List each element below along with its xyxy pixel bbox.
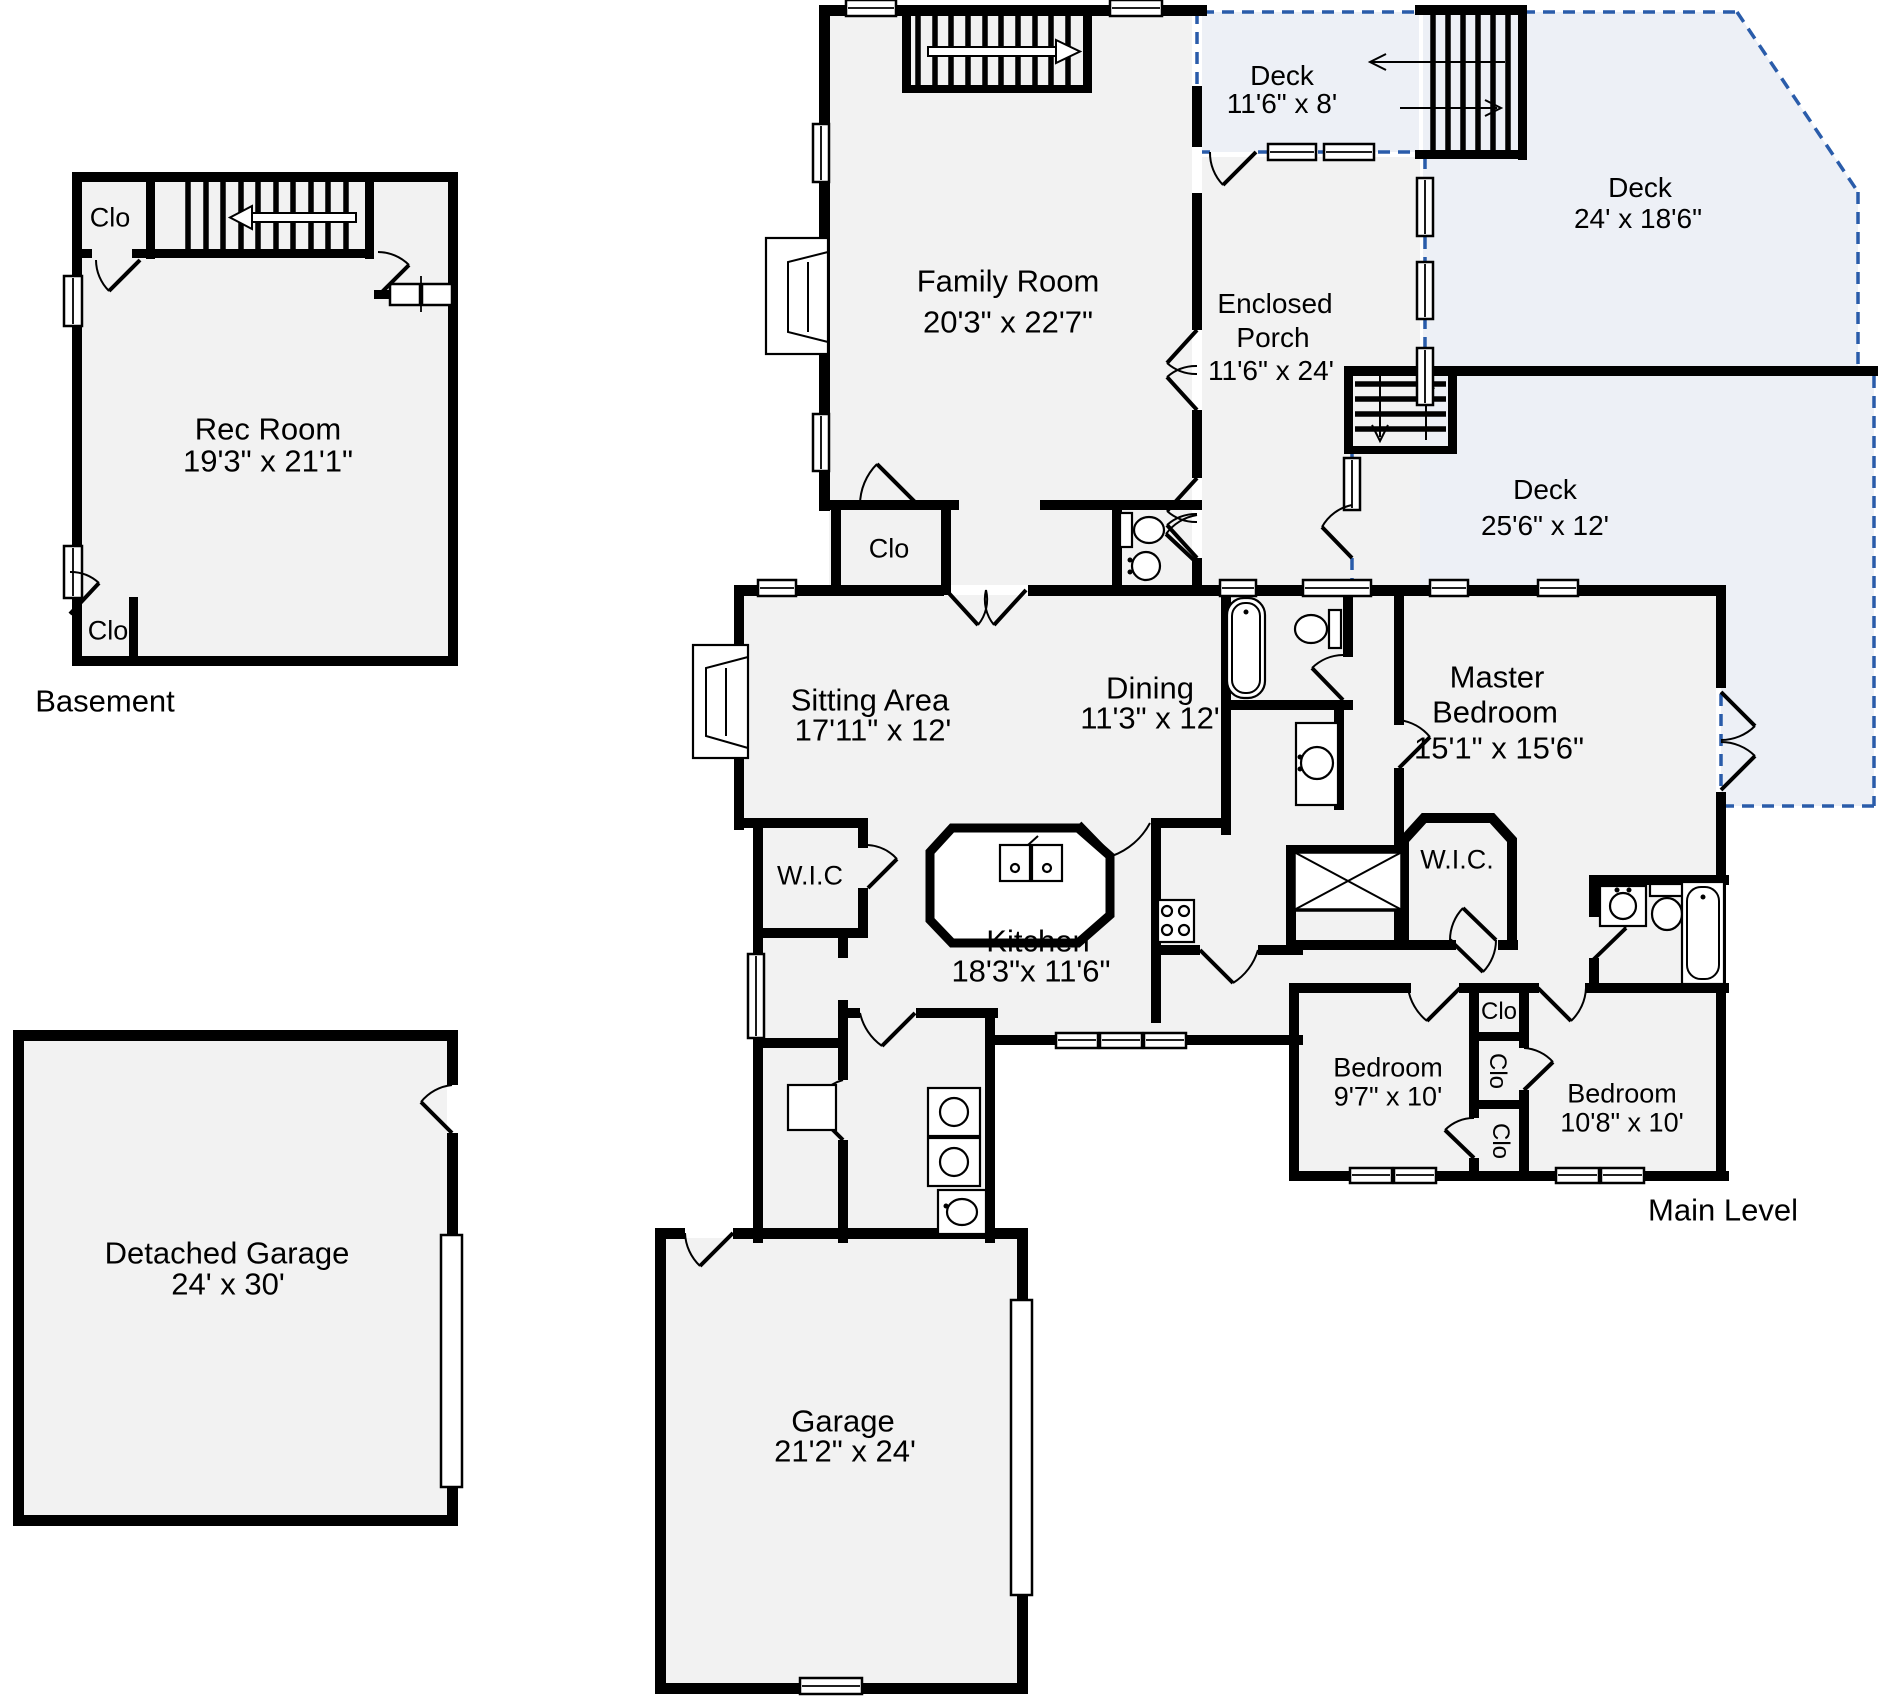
fireplace-family	[766, 238, 828, 354]
master-vanity	[1296, 723, 1338, 805]
kitchen-dims: 18'3"x 11'6"	[951, 956, 1110, 987]
floor-plan-drawing	[0, 0, 1889, 1698]
fireplace-sitting	[693, 645, 748, 758]
hall-bath-sink	[1600, 886, 1646, 926]
dining-label: Dining	[1106, 673, 1194, 704]
shower	[1294, 852, 1402, 910]
freezer	[788, 1085, 836, 1130]
half-bath-toilet	[1120, 513, 1164, 547]
deck-lower-label: Deck	[1513, 476, 1577, 504]
master-bedroom-label-2: Bedroom	[1432, 697, 1558, 728]
master-bedroom-dims: 15'1" x 15'6"	[1414, 733, 1584, 764]
closet-top-label: Clo	[1481, 1000, 1517, 1024]
closet-mid-label: Clo	[1485, 1053, 1509, 1089]
bedroom-right-label: Bedroom	[1567, 1081, 1677, 1108]
garage-door	[1011, 1300, 1032, 1595]
rec-room-dims: 19'3" x 21'1"	[183, 446, 353, 477]
dining-dims: 11'3" x 12'	[1080, 703, 1219, 734]
family-closet-label: Clo	[869, 536, 910, 563]
deck-top-label: Deck	[1250, 62, 1314, 90]
detached-garage-label: Detached Garage	[105, 1238, 350, 1269]
deck-right-label: Deck	[1608, 174, 1672, 202]
enclosed-porch-label-2: Porch	[1236, 324, 1309, 352]
deck-lower-dims: 25'6" x 12'	[1481, 512, 1609, 540]
basement-closet2-label: Clo	[88, 618, 129, 645]
detached-garage-door	[441, 1235, 462, 1487]
detached-garage-dims: 24' x 30'	[171, 1269, 285, 1300]
main-level-section-label: Main Level	[1648, 1195, 1798, 1226]
bedroom-left-label: Bedroom	[1333, 1055, 1443, 1082]
garage-dims: 21'2" x 24'	[774, 1436, 916, 1467]
family-room-dims: 20'3" x 22'7"	[923, 307, 1093, 338]
family-room-label: Family Room	[917, 266, 1100, 297]
garage-label: Garage	[791, 1406, 894, 1437]
enclosed-porch-dims: 11'6" x 24'	[1208, 357, 1334, 385]
sitting-area-label: Sitting Area	[791, 685, 950, 716]
sitting-area-dims: 17'11" x 12'	[795, 715, 952, 746]
basement-section-label: Basement	[35, 686, 175, 717]
master-bedroom-label-1: Master	[1450, 662, 1545, 693]
deck-right-dims: 24' x 18'6"	[1574, 205, 1702, 233]
stove	[1158, 900, 1194, 942]
bedroom-left-dims: 9'7" x 10'	[1334, 1084, 1442, 1111]
hall-bath-toilet	[1650, 884, 1684, 930]
enclosed-porch-label-1: Enclosed	[1217, 290, 1332, 318]
floor-plan: Clo Rec Room 19'3" x 21'1" Clo Basement …	[0, 0, 1889, 1698]
laundry-sink	[938, 1190, 986, 1234]
wic-left-label: W.I.C	[777, 863, 843, 890]
basement-closet-label: Clo	[90, 205, 131, 232]
closet-bottom-label: Clo	[1488, 1123, 1512, 1159]
master-bath-tub	[1227, 598, 1265, 698]
deck-top-dims: 11'6" x 8'	[1227, 90, 1337, 118]
hall-bath-tub	[1682, 882, 1724, 984]
kitchen-label: Kitchen	[986, 926, 1089, 957]
washer-dryer	[928, 1088, 980, 1186]
rec-room-label: Rec Room	[195, 414, 341, 445]
wic-master-label: W.I.C.	[1420, 847, 1494, 874]
bedroom-right-dims: 10'8" x 10'	[1560, 1110, 1683, 1137]
